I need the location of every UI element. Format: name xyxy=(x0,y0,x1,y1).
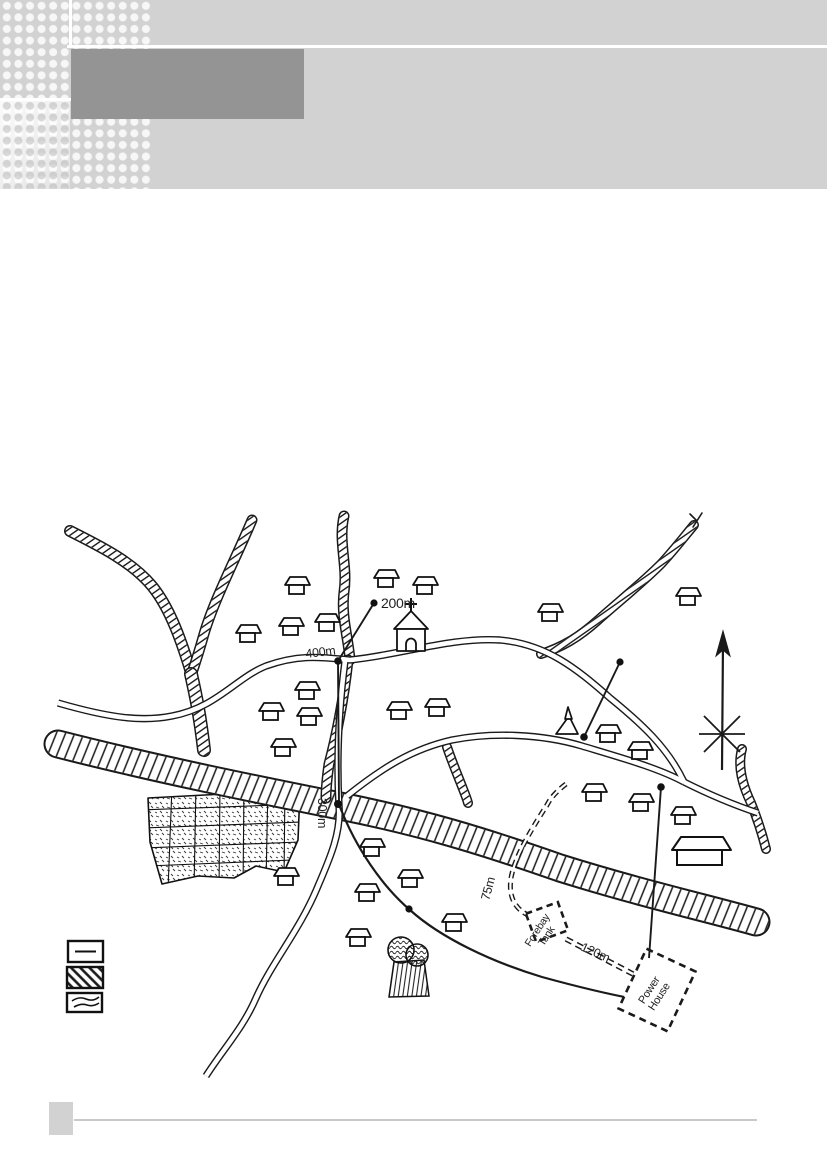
peak-triangle-icon xyxy=(556,707,578,734)
house-icon xyxy=(279,618,304,635)
house-icon xyxy=(538,604,563,621)
trees-icon xyxy=(388,937,429,997)
house-icon xyxy=(355,884,380,901)
house-icon xyxy=(425,699,450,716)
house-icon xyxy=(387,702,412,719)
label-75m: 75m xyxy=(478,876,498,902)
house-icon xyxy=(442,914,467,931)
legend-road-symbol xyxy=(68,941,103,962)
label-300m: 300m xyxy=(315,798,329,828)
footer-page-block xyxy=(49,1102,73,1135)
document-page: 200m 400m 300m 75m 120m Forebay Tank Pow… xyxy=(0,0,827,1169)
house-icon xyxy=(236,625,261,642)
house-icon xyxy=(676,588,701,605)
house-icon xyxy=(315,614,340,631)
house-icon xyxy=(671,807,696,824)
map-legend xyxy=(67,941,103,1012)
large-building-icon xyxy=(672,837,731,865)
house-icon xyxy=(259,703,284,720)
house-icon xyxy=(274,868,299,885)
house-icon xyxy=(582,784,607,801)
footer-rule xyxy=(74,1119,757,1121)
legend-river-symbol xyxy=(67,967,103,988)
house-icon xyxy=(285,577,310,594)
house-icon xyxy=(297,708,322,725)
house-icon xyxy=(596,725,621,742)
label-120m: 120m xyxy=(579,940,612,965)
sketch-map: 200m 400m 300m 75m 120m Forebay Tank Pow… xyxy=(0,0,827,1169)
house-icon xyxy=(360,839,385,856)
house-icon xyxy=(295,682,320,699)
house-icon xyxy=(398,870,423,887)
house-icon xyxy=(629,794,654,811)
north-arrow-icon xyxy=(699,631,745,770)
house-icon xyxy=(374,570,399,587)
house-icon xyxy=(346,929,371,946)
house-icon xyxy=(628,742,653,759)
label-200m: 200m xyxy=(381,595,415,611)
legend-stream-symbol xyxy=(67,993,102,1012)
house-icon xyxy=(413,577,438,594)
house-icon xyxy=(271,739,296,756)
